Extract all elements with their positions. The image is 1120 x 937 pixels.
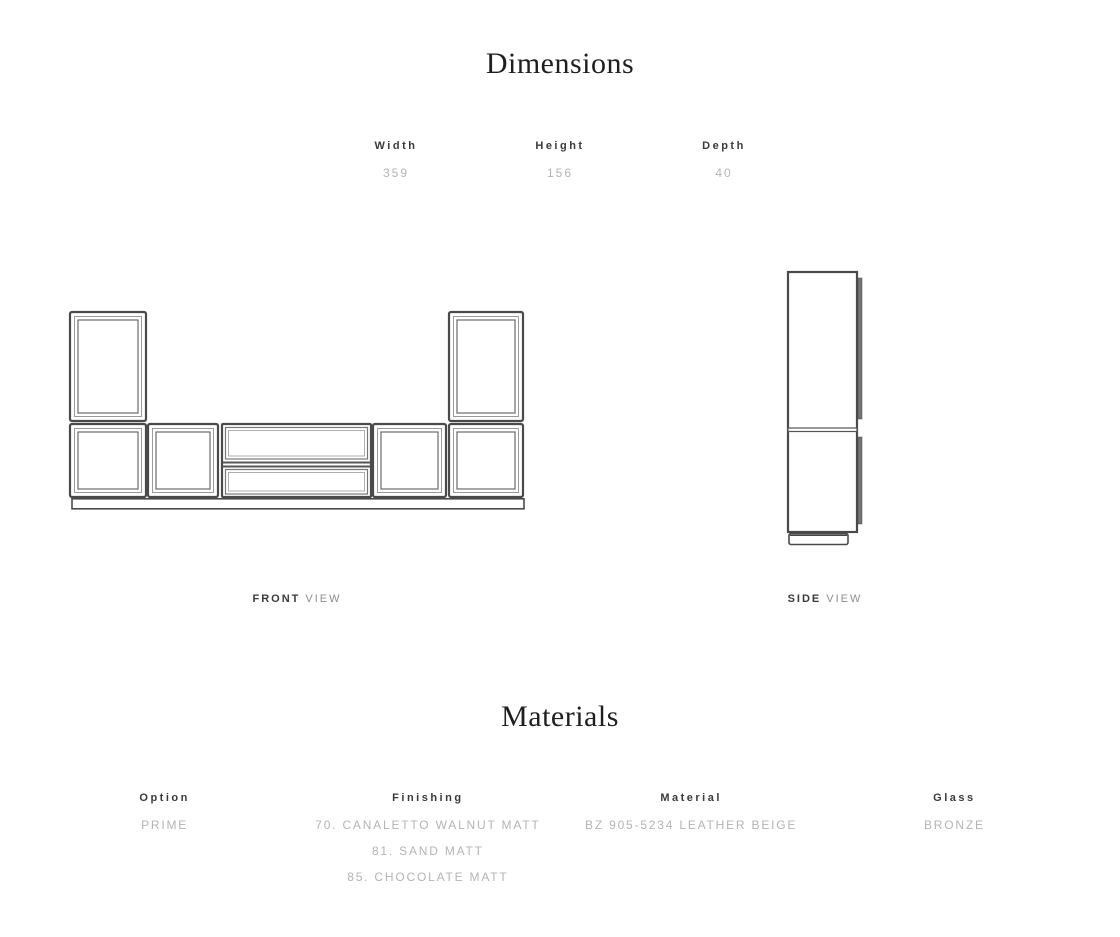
side-divider xyxy=(788,428,857,432)
side-door-edge-bottom xyxy=(858,437,862,524)
materials-finishing-column: Finishing 70. CANALETTO WALNUT MATT 81. … xyxy=(296,792,559,890)
front-drawer-unit xyxy=(222,424,371,497)
front-cabinet-top-left xyxy=(70,312,146,421)
dimension-height-label: Height xyxy=(478,140,642,153)
product-spec-page: Dimensions Width 359 Height 156 Depth 40 xyxy=(0,0,1120,937)
materials-table: Option PRIME Finishing 70. CANALETTO WAL… xyxy=(33,792,1086,890)
front-view-caption-primary: FRONT xyxy=(252,593,300,605)
materials-title: Materials xyxy=(0,700,1120,734)
side-view-caption-secondary: VIEW xyxy=(826,593,862,605)
materials-glass-column: Glass BRONZE xyxy=(823,792,1086,890)
dimension-depth-value: 40 xyxy=(642,167,806,180)
front-view-caption: FRONTVIEW xyxy=(57,593,537,605)
materials-finishing-value-2: 81. SAND MATT xyxy=(296,838,559,864)
front-view-drawing xyxy=(60,300,540,515)
front-cabinet-bottom-1 xyxy=(70,424,146,497)
materials-material-label: Material xyxy=(560,792,823,805)
materials-material-column: Material BZ 905-5234 LEATHER BEIGE xyxy=(560,792,823,890)
dimension-width-column: Width 359 xyxy=(314,140,478,180)
materials-option-column: Option PRIME xyxy=(33,792,296,890)
materials-glass-label: Glass xyxy=(823,792,1086,805)
dimension-height-value: 156 xyxy=(478,167,642,180)
materials-option-label: Option xyxy=(33,792,296,805)
front-cabinet-bottom-4 xyxy=(449,424,523,497)
dimension-height-column: Height 156 xyxy=(478,140,642,180)
materials-material-value: BZ 905-5234 LEATHER BEIGE xyxy=(560,812,823,838)
side-view-drawing xyxy=(770,260,880,560)
materials-finishing-value-3: 85. CHOCOLATE MATT xyxy=(296,864,559,890)
side-view-caption: SIDEVIEW xyxy=(770,593,880,605)
front-cabinet-top-right xyxy=(449,312,523,421)
dimension-depth-label: Depth xyxy=(642,140,806,153)
front-cabinet-bottom-3 xyxy=(373,424,446,497)
materials-glass-value: BRONZE xyxy=(823,812,1086,838)
dimension-depth-column: Depth 40 xyxy=(642,140,806,180)
materials-finishing-label: Finishing xyxy=(296,792,559,805)
front-base-plinth xyxy=(72,499,524,509)
side-view-caption-primary: SIDE xyxy=(788,593,822,605)
front-view-caption-secondary: VIEW xyxy=(305,593,341,605)
materials-finishing-value-1: 70. CANALETTO WALNUT MATT xyxy=(296,812,559,838)
dimensions-title: Dimensions xyxy=(0,47,1120,81)
front-cabinet-bottom-2 xyxy=(148,424,218,497)
dimension-width-value: 359 xyxy=(314,167,478,180)
dimensions-table: Width 359 Height 156 Depth 40 xyxy=(0,140,1120,180)
materials-option-value: PRIME xyxy=(33,812,296,838)
side-door-edge-top xyxy=(858,278,862,419)
dimension-width-label: Width xyxy=(314,140,478,153)
side-body xyxy=(788,272,857,532)
